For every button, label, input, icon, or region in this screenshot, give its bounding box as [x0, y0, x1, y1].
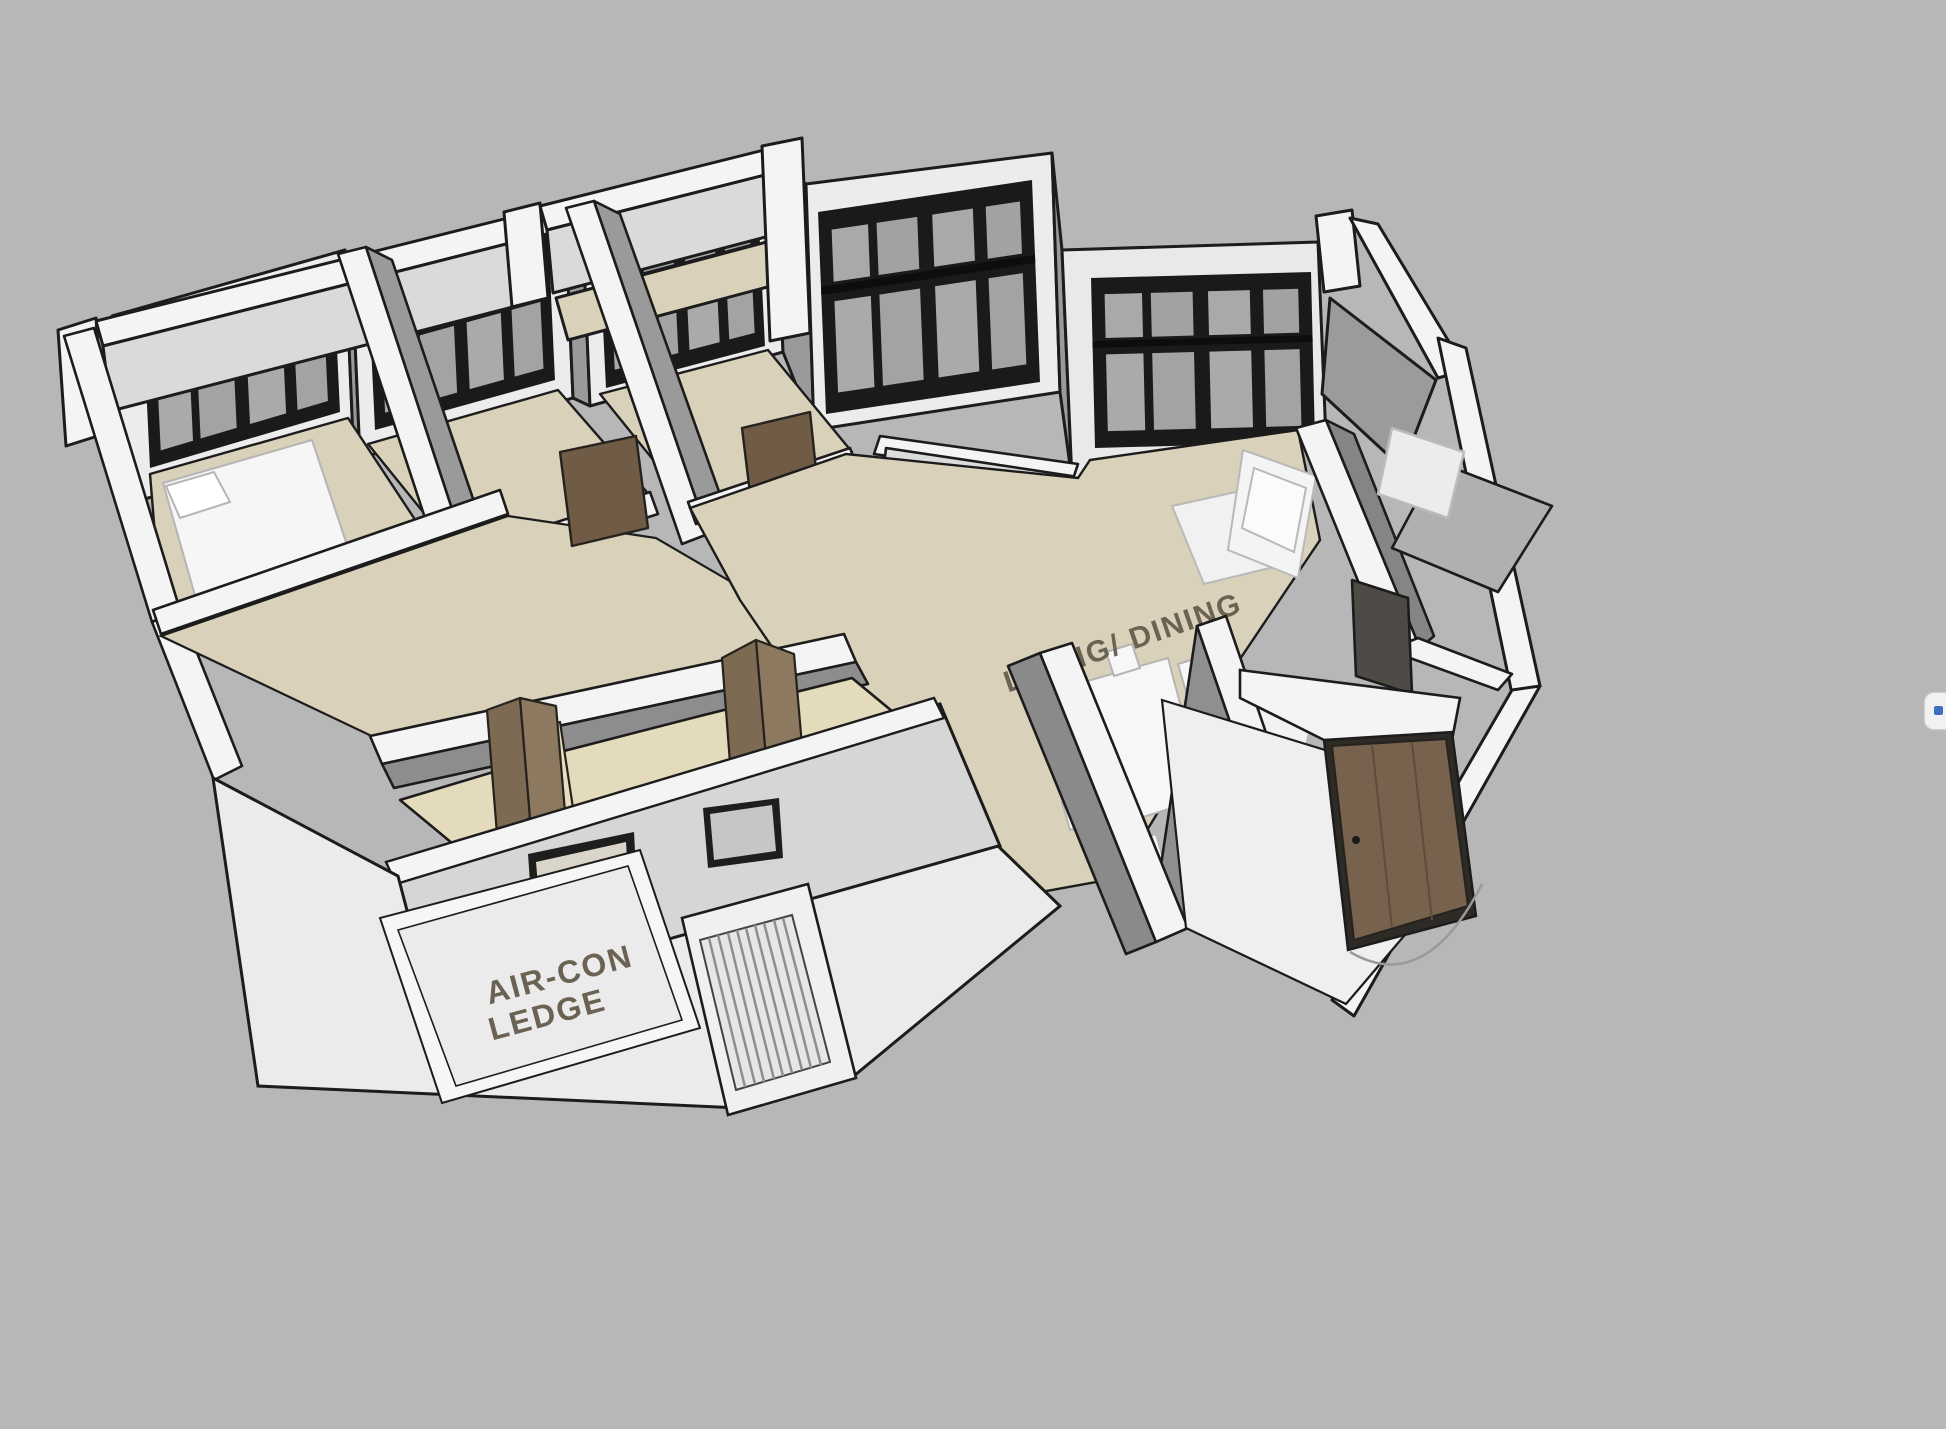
model-viewport[interactable]: LIVING/ DINING [0, 0, 1946, 1429]
side-panel-tab[interactable] [1924, 692, 1946, 730]
wall-column [762, 138, 810, 341]
floor-plan-canvas: LIVING/ DINING [0, 0, 1946, 1429]
living-window [1091, 272, 1315, 448]
parapet-post [504, 203, 548, 307]
bedroom-door [560, 436, 648, 546]
door-handle [1352, 836, 1360, 844]
bath-window-glass [710, 805, 776, 860]
store-doorway [1352, 580, 1412, 694]
tab-handle-icon [1934, 706, 1943, 715]
